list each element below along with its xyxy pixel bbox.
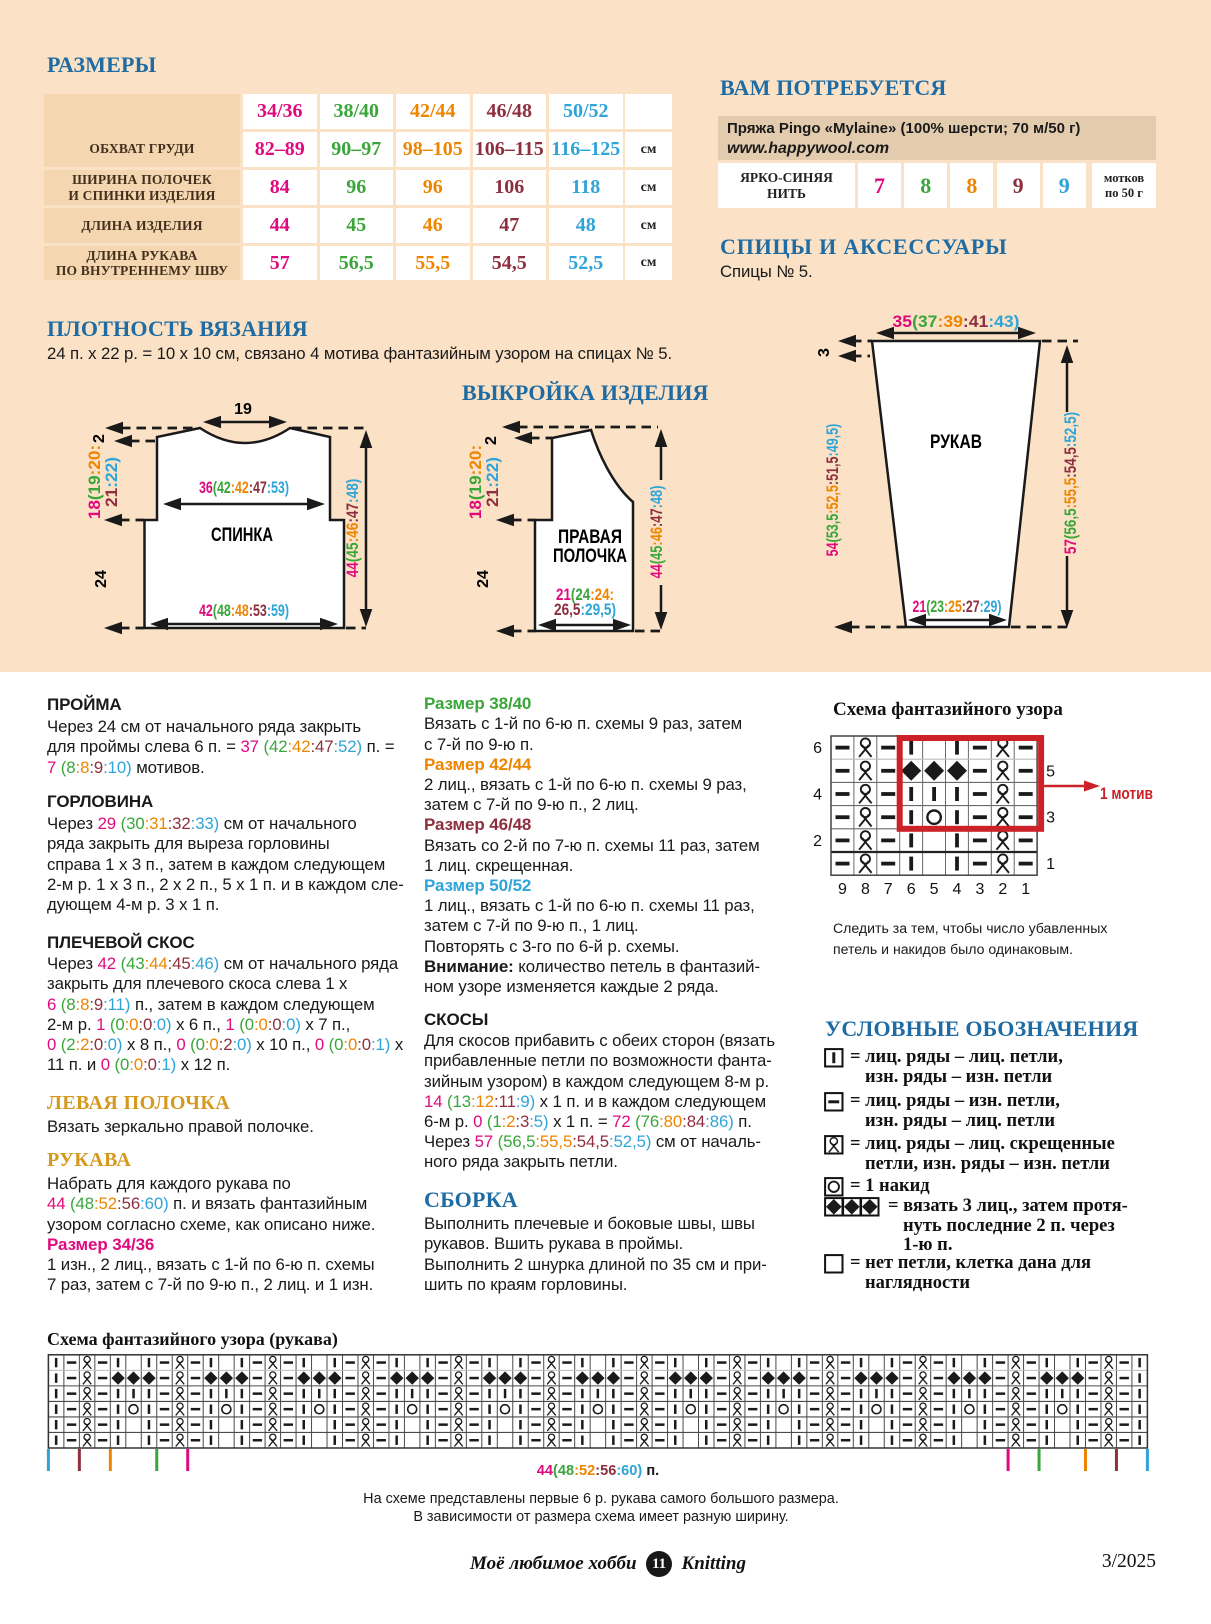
svg-text:21:22): 21:22) [482,457,502,507]
svg-text:21:22): 21:22) [101,457,121,507]
svg-text:24: 24 [475,570,492,588]
svg-text:54(53,5:52,5:51,5:49,5): 54(53,5:52,5:51,5:49,5) [823,424,842,557]
svg-text:6: 6 [813,740,822,757]
svg-text:8: 8 [861,881,870,898]
svg-text:5: 5 [930,881,939,898]
svg-text:4: 4 [953,881,962,898]
svg-text:3: 3 [1046,810,1055,827]
svg-text:19: 19 [234,401,252,418]
svg-text:1: 1 [1021,881,1030,898]
svg-text:36(42:42:47:53): 36(42:42:47:53) [199,479,289,497]
svg-text:7: 7 [884,881,893,898]
svg-text:4: 4 [813,787,822,804]
svg-text:44(45:46:47:48): 44(45:46:47:48) [647,486,666,579]
svg-text:2: 2 [813,833,822,850]
svg-text:42(48:48:53:59): 42(48:48:53:59) [199,602,289,620]
svg-text:44(45:46:47:48): 44(45:46:47:48) [344,479,363,578]
svg-text:РУКАВ: РУКАВ [930,431,982,453]
svg-text:24: 24 [93,570,110,588]
svg-text:3: 3 [975,881,984,898]
svg-text:2: 2 [483,436,500,445]
svg-text:1: 1 [1046,856,1055,873]
svg-text:35(37:39:41:43): 35(37:39:41:43) [893,311,1020,331]
svg-text:9: 9 [838,881,847,898]
svg-text:26,5:29,5): 26,5:29,5) [554,601,616,620]
svg-text:1 мотив: 1 мотив [1100,785,1153,804]
svg-text:2: 2 [998,881,1007,898]
svg-text:СПИНКА: СПИНКА [211,524,273,545]
svg-text:5: 5 [1046,763,1055,780]
svg-text:6: 6 [907,881,916,898]
svg-text:57(56,5:55,5:54,5:52,5): 57(56,5:55,5:54,5:52,5) [1062,412,1081,554]
svg-text:3: 3 [816,348,833,357]
svg-text:ПОЛОЧКА: ПОЛОЧКА [553,545,627,566]
svg-text:ПРАВАЯ: ПРАВАЯ [558,525,622,547]
svg-text:2: 2 [91,434,108,443]
